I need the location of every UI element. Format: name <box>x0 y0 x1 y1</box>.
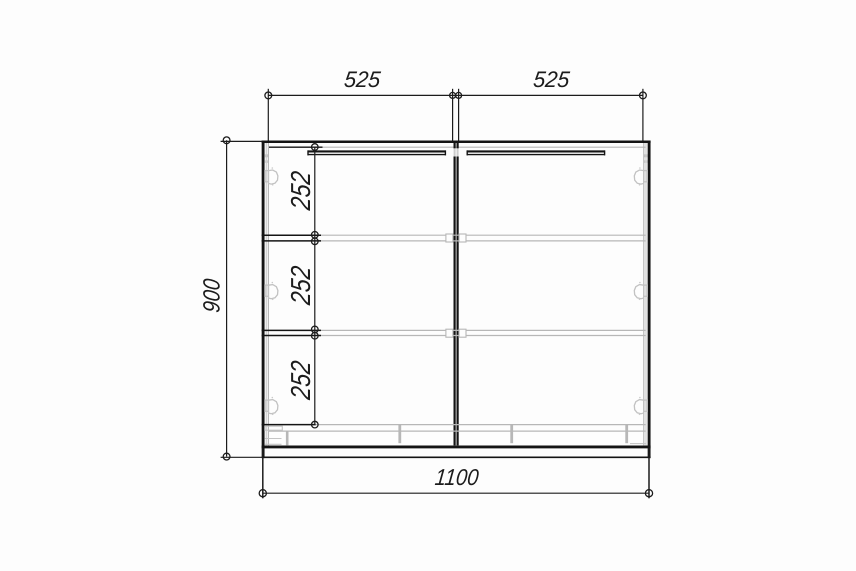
svg-text:252: 252 <box>285 170 316 213</box>
svg-text:525: 525 <box>343 67 382 92</box>
svg-text:252: 252 <box>285 359 316 402</box>
svg-text:900: 900 <box>198 278 224 314</box>
svg-text:252: 252 <box>285 264 316 307</box>
svg-text:1100: 1100 <box>434 464 480 490</box>
svg-text:525: 525 <box>532 67 571 92</box>
